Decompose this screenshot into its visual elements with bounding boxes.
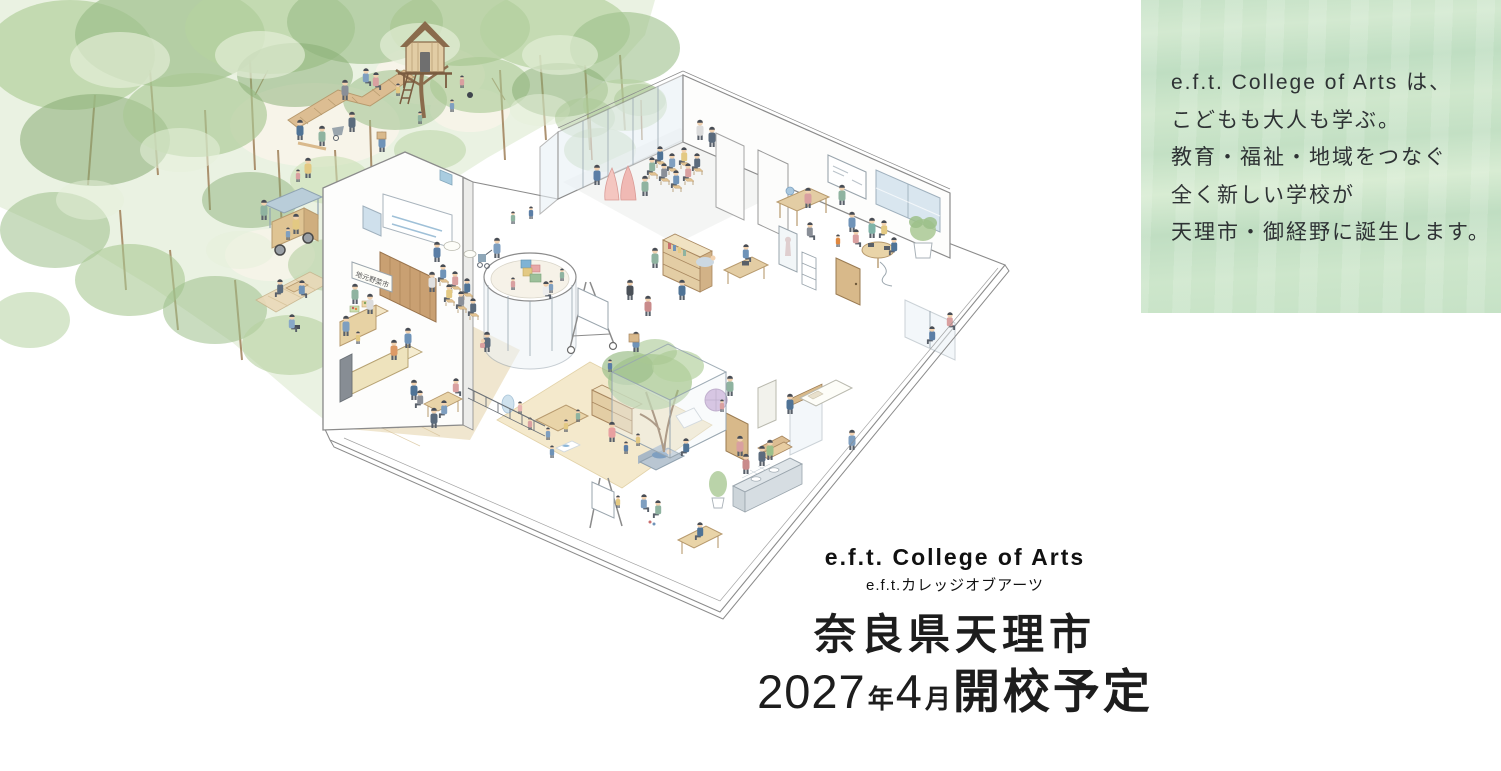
title-block: e.f.t. College of Arts e.f.t.カレッジオブアーツ 奈… <box>705 544 1205 727</box>
hero-page: { "intro_panel": { "lines": [ "e.f.t. Co… <box>0 0 1501 771</box>
year-suffix: 年 <box>868 684 894 714</box>
pendant-lamp <box>464 251 476 258</box>
school-name-en: e.f.t. College of Arts <box>705 544 1205 570</box>
intro-line: 全く新しい学校が <box>1171 177 1483 215</box>
opening-month: 4 <box>896 665 923 718</box>
school-name-ja: e.f.t.カレッジオブアーツ <box>705 577 1205 595</box>
location-title: 奈良県天理市 <box>705 610 1205 660</box>
intro-line: e.f.t. College of Arts は、 <box>1171 64 1483 102</box>
opening-year: 2027 <box>757 665 866 718</box>
intro-line: 教育・福祉・地域をつなぐ <box>1171 139 1483 177</box>
leaning-board <box>758 380 776 428</box>
month-suffix: 月 <box>925 684 951 714</box>
intro-line: こどもも大人も学ぶ。 <box>1171 102 1483 140</box>
opening-label: 開校予定 <box>953 665 1153 718</box>
opening-line: 2027年4月開校予定 <box>705 664 1205 727</box>
pendant-lamp <box>444 242 460 251</box>
round-pod <box>484 253 576 369</box>
intro-line: 天理市・御経野に誕生します。 <box>1171 214 1483 252</box>
intro-panel: e.f.t. College of Arts は、 こどもも大人も学ぶ。 教育・… <box>1141 0 1501 313</box>
